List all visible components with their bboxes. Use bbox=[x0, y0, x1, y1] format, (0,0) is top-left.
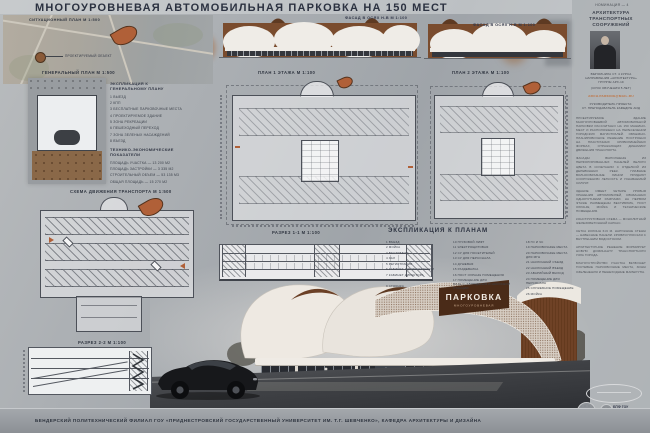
car-render bbox=[152, 346, 264, 402]
facade-1-drawing bbox=[219, 13, 421, 63]
tep-item: ПЛОЩАДЬ УЧАСТКА — 13 200 М2 bbox=[110, 162, 214, 165]
scheme-lower-block bbox=[76, 296, 142, 332]
orange-mark bbox=[235, 146, 240, 148]
scheme-parking-outline bbox=[40, 210, 194, 298]
facade-1-label: ФАСАД В ОСЯХ Н-В М 1:100 bbox=[345, 16, 407, 20]
presentation-board: ПАРКОВКА МНОГОУРОВНЕВАЯ bbox=[0, 0, 650, 433]
stair-tower-hatch bbox=[314, 245, 340, 277]
tep-block: ТЕХНИКО-ЭКОНОМИЧЕСКИЕ ПОКАЗАТЕЛИ ПЛОЩАДЬ… bbox=[110, 147, 214, 187]
leader-line bbox=[45, 56, 63, 57]
facade-2-drawing bbox=[424, 12, 571, 66]
transport-scheme-drawing bbox=[30, 196, 202, 332]
plans-explication-item: 5 РЕГИСТРАЦИЯ bbox=[386, 262, 446, 266]
genplan-explication-item: 5 ЗОНА РЕКРЕАЦИИ bbox=[110, 121, 214, 124]
axis-bubbles-bottom bbox=[232, 225, 414, 227]
section-2-drawing bbox=[28, 347, 152, 395]
ground-line bbox=[219, 57, 421, 58]
author-photo bbox=[590, 31, 620, 69]
genplan-explication-item: 3 БЕСПЛАТНЫЕ ПАРКОВОЧНЫЕ МЕСТА bbox=[110, 108, 214, 111]
genplan-explication: ЭКСПЛИКАЦИЯ К ГЕНЕРАЛЬНОМУ ПЛАНУ 1 ВЫЕЗД… bbox=[110, 81, 214, 146]
genplan-explication-item: 4 ПРОЕКТИРУЕМОЕ ЗДАНИЕ bbox=[110, 115, 214, 118]
plans-explication-item: 17 ПОМЕЩЕНИЕ ДЛЯ ВИДЕОНАБЛЮДЕНИЯ И НАСОС… bbox=[453, 278, 519, 290]
author-info: ВЫПОЛНИЛА СТ. 4 КУРСАНАПРАВЛЕНИЯ «АРХИТЕ… bbox=[576, 72, 646, 85]
plans-explication-item: 8 БУФЕТ bbox=[386, 278, 446, 282]
plans-explication-heading: ЭКСПЛИКАЦИЯ К ПЛАНАМ bbox=[388, 227, 488, 234]
footer-bar: БЕНДЕРСКИЙ ПОЛИТЕХНИЧЕСКИЙ ФИЛИАЛ ГОУ «П… bbox=[0, 408, 650, 433]
tep-list: ПЛОЩАДЬ УЧАСТКА — 13 200 М2ПЛОЩАДЬ ЗАСТР… bbox=[110, 162, 214, 184]
plans-explication-item: 4 ЗАЛ bbox=[386, 256, 446, 260]
plan-1-drawing bbox=[224, 79, 420, 227]
general-plan-label: ГЕНЕРАЛЬНЫЙ ПЛАН М 1:500 bbox=[42, 70, 115, 75]
stair-zigzag bbox=[131, 352, 145, 390]
axis-bubbles-left bbox=[220, 95, 222, 219]
project-description-paragraph: ФАСАДЫ ВЫПОЛНЕНЫ ИЗ ПЕРФОРИРОВАННЫХ ПАНЕ… bbox=[576, 156, 646, 184]
plans-explication-item: 14 ДУШЕВАЯ bbox=[453, 262, 519, 266]
level-marks bbox=[23, 350, 25, 392]
site-marker-dot bbox=[35, 52, 46, 63]
supervisor-info-line: СТ. ПРЕПОДАВАТЕЛЬ КАФЕДРЫ АИД bbox=[576, 106, 646, 110]
plan-2-drawing bbox=[430, 80, 568, 226]
plans-explication-item: 2 МОЙКА bbox=[386, 245, 446, 249]
genplan-explication-list: 1 ВЫЕЗД2 КПП3 БЕСПЛАТНЫЕ ПАРКОВОЧНЫЕ МЕС… bbox=[110, 96, 214, 143]
plans-explication-col-1: 1 ВЪЕЗД2 МОЙКА3 ВЕСТИБЮЛЬ4 ЗАЛ5 РЕГИСТРА… bbox=[386, 240, 446, 297]
parking-row bbox=[45, 217, 189, 235]
plans-explication: 1 ВЪЕЗД2 МОЙКА3 ВЕСТИБЮЛЬ4 ЗАЛ5 РЕГИСТРА… bbox=[386, 240, 570, 297]
genplan-explication-item: 7 ЗОНА ЗЕЛЕНЫХ НАСАЖДЕНИЙ bbox=[110, 134, 214, 137]
situational-plan-label: СИТУАЦИОННЫЙ ПЛАН М 1:500 bbox=[29, 18, 100, 22]
plans-explication-item: 7 КАБИНЕТ ДИРЕКТОРА bbox=[386, 273, 446, 277]
genplan-explication-item: 2 КПП bbox=[110, 102, 214, 105]
stair-tower-hatch bbox=[222, 245, 246, 277]
plans-explication-item: 13 СУ ДЛЯ ПЕРСОНАЛА bbox=[453, 256, 519, 260]
plans-explication-item: 23 АВАРИЙНЫЙ ВЫХОД bbox=[526, 271, 574, 275]
scheme-ramp-bump bbox=[100, 197, 128, 211]
plans-explication-item: 6 КАБИНЕТ АДМИНИСТРАЦИИ bbox=[386, 267, 446, 271]
author-info-line: ГРУППЫ АРХ-19 bbox=[576, 80, 646, 84]
study-term-line: (СРОК ОБУЧЕНИЯ 5 ЛЕТ) bbox=[576, 86, 646, 90]
projected-object-tag: ПРОЕКТИРУЕМЫЙ ОБЪЕКТ bbox=[65, 54, 112, 58]
genplan-trees bbox=[28, 78, 106, 93]
genplan-building-mass bbox=[54, 130, 80, 145]
white-band bbox=[225, 47, 415, 51]
plan-2-label: ПЛАН 2 ЭТАЖА М 1:100 bbox=[452, 70, 509, 75]
plans-explication-item: 22 НАКЛОННЫЙ ВЪЕЗД bbox=[526, 266, 574, 270]
genplan-landscape bbox=[32, 151, 102, 180]
plans-explication-item: 26 МОЙКА bbox=[526, 292, 574, 296]
plans-explication-item: 21 НАКЛОННЫЙ СЪЕЗД bbox=[526, 260, 574, 264]
plan-outline bbox=[434, 95, 564, 219]
project-description-paragraph: ПРОЕКТИРУЕМОЕ ЗДАНИЕ МНОГОУРОВНЕВОЙ АВТО… bbox=[576, 116, 646, 152]
plans-explication-item: 18 ГО И ЧС bbox=[526, 240, 574, 244]
facade-2-label: ФАСАД В ОСЯХ Н-В М 1:100 bbox=[473, 23, 535, 27]
plans-explication-item: 12 СУ ДЛЯ ПОСЕТИТЕЛЕЙ bbox=[453, 251, 519, 255]
flow-arrow bbox=[49, 237, 54, 243]
crosswalk bbox=[247, 382, 503, 391]
plans-explication-item: 1 ВЪЕЗД bbox=[386, 240, 446, 244]
nomination-category: АРХИТЕКТУРА ТРАНСПОРТНЫХ СООРУЖЕНИЙ bbox=[576, 10, 646, 28]
author-email: ARCH.PARKING@MAIL.RU bbox=[576, 94, 646, 98]
parking-band bbox=[440, 106, 558, 133]
axis-bubbles-right bbox=[566, 95, 568, 217]
genplan-building-outline bbox=[37, 95, 97, 151]
facade-ear bbox=[536, 19, 552, 25]
plans-explication-item: 9 СТОЯНКА bbox=[386, 284, 446, 288]
tep-item: ОБЩАЯ ПЛОЩАДЬ — 15 270 М2 bbox=[110, 181, 214, 184]
section-2-label: РАЗРЕЗ 2-2 М 1:100 bbox=[78, 340, 126, 345]
plans-explication-item: 16 ПОСТ ОХРАНЫ ПОМЕЩЕНИЯ bbox=[453, 273, 519, 277]
headlight bbox=[253, 378, 257, 380]
genplan-explication-heading-2: ГЕНЕРАЛЬНОМУ ПЛАНУ bbox=[110, 86, 214, 91]
project-description: ПРОЕКТИРУЕМОЕ ЗДАНИЕ МНОГОУРОВНЕВОЙ АВТО… bbox=[576, 116, 646, 278]
facade-ear bbox=[271, 19, 285, 24]
board-title: МНОГОУРОВНЕВАЯ АВТОМОБИЛЬНАЯ ПАРКОВКА НА… bbox=[35, 2, 448, 14]
parking-row bbox=[45, 269, 189, 287]
tep-item: СТРОИТЕЛЬНЫЙ ОБЪЕМ — 53 135 М3 bbox=[110, 174, 214, 177]
facade-ear bbox=[442, 19, 458, 24]
university-oval-logo bbox=[586, 384, 642, 403]
plans-explication-item: 10 ГРУЗОВОЙ ЛИФТ bbox=[453, 240, 519, 244]
plans-explication-item: 3 ВЕСТИБЮЛЬ bbox=[386, 251, 446, 255]
tep-item: ПЛОЩАДЬ ЗАСТРОЙКИ — 3 335 М2 bbox=[110, 168, 214, 171]
white-band bbox=[430, 48, 565, 52]
plans-explication-item: 19 ПАРКОВОЧНЫЕ МЕСТА bbox=[526, 245, 574, 249]
flow-arrow bbox=[180, 263, 185, 269]
plans-explication-item: 15 РАЗДЕВАЛКА bbox=[453, 267, 519, 271]
plan-1-label: ПЛАН 1 ЭТАЖА М 1:100 bbox=[258, 70, 315, 75]
plan-outline bbox=[232, 95, 416, 221]
wheel-rim bbox=[176, 386, 183, 393]
orange-mark bbox=[408, 166, 413, 168]
general-plan-drawing bbox=[28, 78, 106, 184]
stair-core bbox=[301, 140, 339, 182]
project-description-paragraph: ЗДАНИЕ ИМЕЕТ ЧЕТЫРЕ УРОВНЯ ХРАНЕНИЯ АВТО… bbox=[576, 189, 646, 213]
supervisor-info: РУКОВОДИТЕЛЬ ПРОЕКТА:СТ. ПРЕПОДАВАТЕЛЬ К… bbox=[576, 102, 646, 110]
section-1-label: РАЗРЕЗ 1-1 М 1:100 bbox=[272, 230, 320, 235]
parking-band bbox=[440, 174, 558, 201]
plans-explication-col-2: 10 ГРУЗОВОЙ ЛИФТ11 ЭЛЕКТРОЩИТОВАЯ12 СУ Д… bbox=[453, 240, 519, 297]
wheel-rim bbox=[232, 386, 239, 393]
parking-band bbox=[239, 108, 409, 136]
genplan-explication-item: 6 ПЕШЕХОДНЫЙ ПЕРЕХОД bbox=[110, 127, 214, 130]
genplan-explication-item: 1 ВЫЕЗД bbox=[110, 96, 214, 99]
plans-explication-item: 11 ЭЛЕКТРОЩИТОВАЯ bbox=[453, 245, 519, 249]
map-patch bbox=[153, 23, 203, 47]
footer-caption: БЕНДЕРСКИЙ ПОЛИТЕХНИЧЕСКИЙ ФИЛИАЛ ГОУ «П… bbox=[35, 418, 481, 423]
project-description-paragraph: КОНСТРУКТИВНАЯ СХЕМА — МОНОЛИТНЫЙ ЖЕЛЕЗО… bbox=[576, 217, 646, 225]
project-description-paragraph: БЛАГОУСТРОЙСТВО УЧАСТКА ВКЛЮЧАЕТ ГОСТЕВЫ… bbox=[576, 261, 646, 273]
plans-explication-item: 24 ПОМЕЩЕНИЕ ДЛЯ ПЕРСОНАЛА bbox=[526, 277, 574, 285]
glazing-strip bbox=[432, 52, 563, 57]
plans-explication-col-3: 18 ГО И ЧС19 ПАРКОВОЧНЫЕ МЕСТА20 ПАРКОВО… bbox=[526, 240, 574, 297]
plans-explication-item: 20 ПАРКОВОЧНЫЕ МЕСТА ДЛЯ МГН bbox=[526, 251, 574, 259]
sign-subtext: МНОГОУРОВНЕВАЯ bbox=[454, 304, 494, 308]
plans-explication-item: 25 СЛУЖЕБНОЕ ПОМЕЩЕНИЕ bbox=[526, 286, 574, 290]
genplan-explication-item: 8 ВЪЕЗД bbox=[110, 140, 214, 143]
nomination-number: НОМИНАЦИЯ — 4 bbox=[578, 3, 646, 7]
project-description-paragraph: АРХИТЕКТУРНОЕ РЕШЕНИЕ ФОРМИРУЕТ НОВУЮ ДО… bbox=[576, 245, 646, 257]
stair-core bbox=[481, 138, 515, 176]
tep-heading-2: ПОКАЗАТЕЛИ bbox=[110, 152, 214, 157]
project-description-paragraph: СЕТКА КОЛОНН 6×6 М. НАРУЖНЫЕ СТЕНЫ — НАВ… bbox=[576, 229, 646, 241]
glazing-mullions bbox=[227, 51, 413, 56]
ramp-line bbox=[33, 361, 128, 379]
transport-scheme-label: СХЕМА ДВИЖЕНИЯ ТРАНСПОРТА М 1:500 bbox=[70, 189, 172, 194]
ground-line bbox=[424, 58, 571, 59]
